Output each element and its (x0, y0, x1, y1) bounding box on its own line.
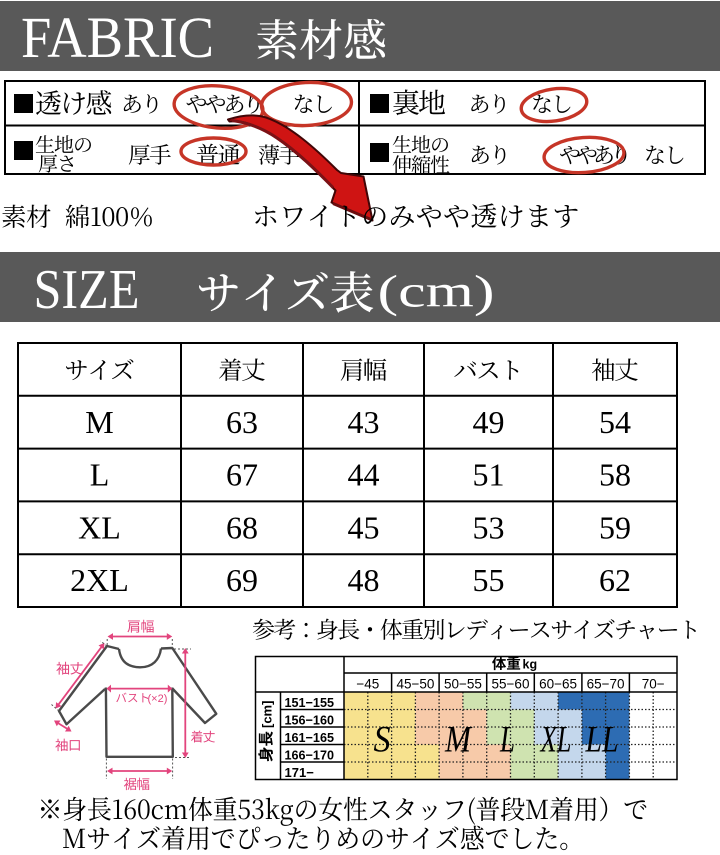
svg-text:70−: 70− (642, 677, 665, 692)
svg-text:LL: LL (585, 720, 619, 761)
svg-text:FABRIC: FABRIC (21, 5, 214, 70)
svg-text:62: 62 (599, 562, 631, 598)
svg-text:50−55: 50−55 (444, 677, 482, 692)
svg-text:[cm]: [cm] (260, 701, 275, 728)
svg-text:M: M (85, 404, 113, 440)
svg-text:48: 48 (348, 562, 380, 598)
svg-text:SIZE: SIZE (34, 259, 140, 321)
svg-text:44: 44 (348, 457, 380, 493)
svg-text:M: M (444, 720, 473, 761)
svg-text:69: 69 (226, 562, 258, 598)
svg-text:(cm): (cm) (378, 267, 495, 317)
svg-text:55−60: 55−60 (492, 677, 530, 692)
svg-text:171−: 171− (285, 765, 315, 780)
svg-text:156−160: 156−160 (285, 712, 335, 727)
svg-text:65−70: 65−70 (587, 677, 625, 692)
svg-text:45−50: 45−50 (396, 677, 434, 692)
svg-text:67: 67 (226, 457, 258, 493)
svg-text:68: 68 (226, 509, 258, 545)
svg-text:58: 58 (599, 457, 631, 493)
svg-text:(×2): (×2) (148, 693, 168, 705)
svg-text:2XL: 2XL (70, 562, 129, 598)
svg-text:51: 51 (473, 457, 505, 493)
svg-text:166−170: 166−170 (285, 747, 335, 762)
svg-text:−45: −45 (356, 677, 379, 692)
svg-text:151−155: 151−155 (285, 695, 335, 710)
svg-text:L: L (90, 457, 110, 493)
svg-text:53: 53 (473, 509, 505, 545)
svg-text:43: 43 (348, 404, 380, 440)
svg-text:60−65: 60−65 (539, 677, 577, 692)
svg-text:XL: XL (78, 509, 121, 545)
svg-text:59: 59 (599, 509, 631, 545)
svg-text:kg: kg (523, 658, 538, 672)
svg-text:49: 49 (473, 404, 505, 440)
svg-text:63: 63 (226, 404, 258, 440)
svg-text:45: 45 (348, 509, 380, 545)
svg-text:L: L (499, 720, 515, 761)
svg-text:S: S (374, 720, 391, 761)
svg-text:161−165: 161−165 (285, 730, 335, 745)
svg-text:55: 55 (473, 562, 505, 598)
svg-text:54: 54 (599, 404, 631, 440)
svg-text:XL: XL (539, 720, 571, 761)
